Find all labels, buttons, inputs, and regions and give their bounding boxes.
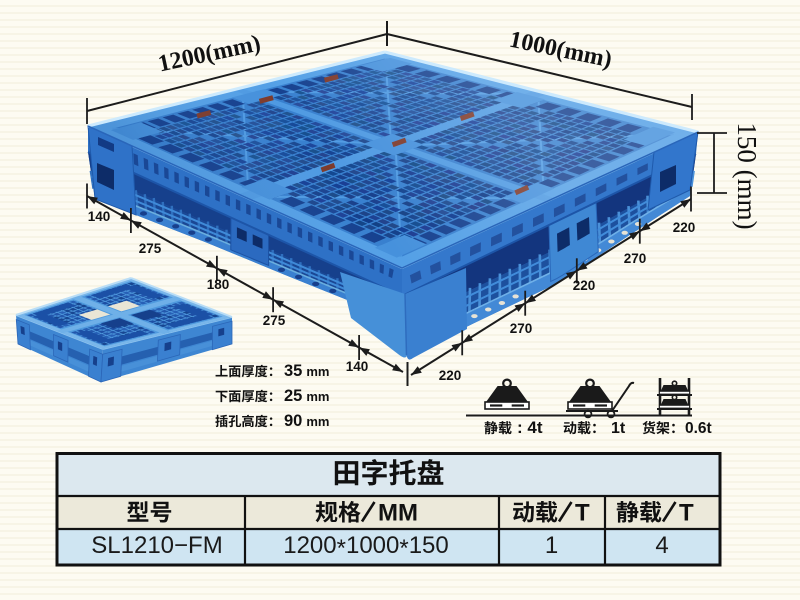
svg-text:1200*1000*150: 1200*1000*150 xyxy=(283,532,449,562)
svg-text:4: 4 xyxy=(655,532,668,559)
svg-text:270: 270 xyxy=(510,321,533,336)
svg-text:1t: 1t xyxy=(611,420,626,437)
svg-text:220: 220 xyxy=(573,278,596,293)
svg-text:1: 1 xyxy=(545,532,558,559)
svg-text:270: 270 xyxy=(624,251,647,266)
svg-text:220: 220 xyxy=(439,368,462,383)
svg-text:150 (mm): 150 (mm) xyxy=(732,122,762,229)
svg-text:220: 220 xyxy=(673,220,696,235)
svg-text:35mm: 35mm xyxy=(284,362,329,380)
svg-text:25mm: 25mm xyxy=(284,387,329,405)
svg-text:SL1210−FM: SL1210−FM xyxy=(91,532,222,559)
svg-text:180: 180 xyxy=(207,277,230,292)
svg-text:275: 275 xyxy=(263,313,286,328)
svg-text:MM: MM xyxy=(378,500,418,527)
svg-text:T: T xyxy=(679,500,694,527)
svg-text:0.6t: 0.6t xyxy=(685,420,712,437)
svg-text:: 4t: : 4t xyxy=(517,418,543,437)
svg-text:140: 140 xyxy=(88,209,111,224)
svg-text:T: T xyxy=(575,500,590,527)
svg-text:90mm: 90mm xyxy=(284,412,329,430)
svg-text:275: 275 xyxy=(139,241,162,256)
svg-text:140: 140 xyxy=(346,359,369,374)
